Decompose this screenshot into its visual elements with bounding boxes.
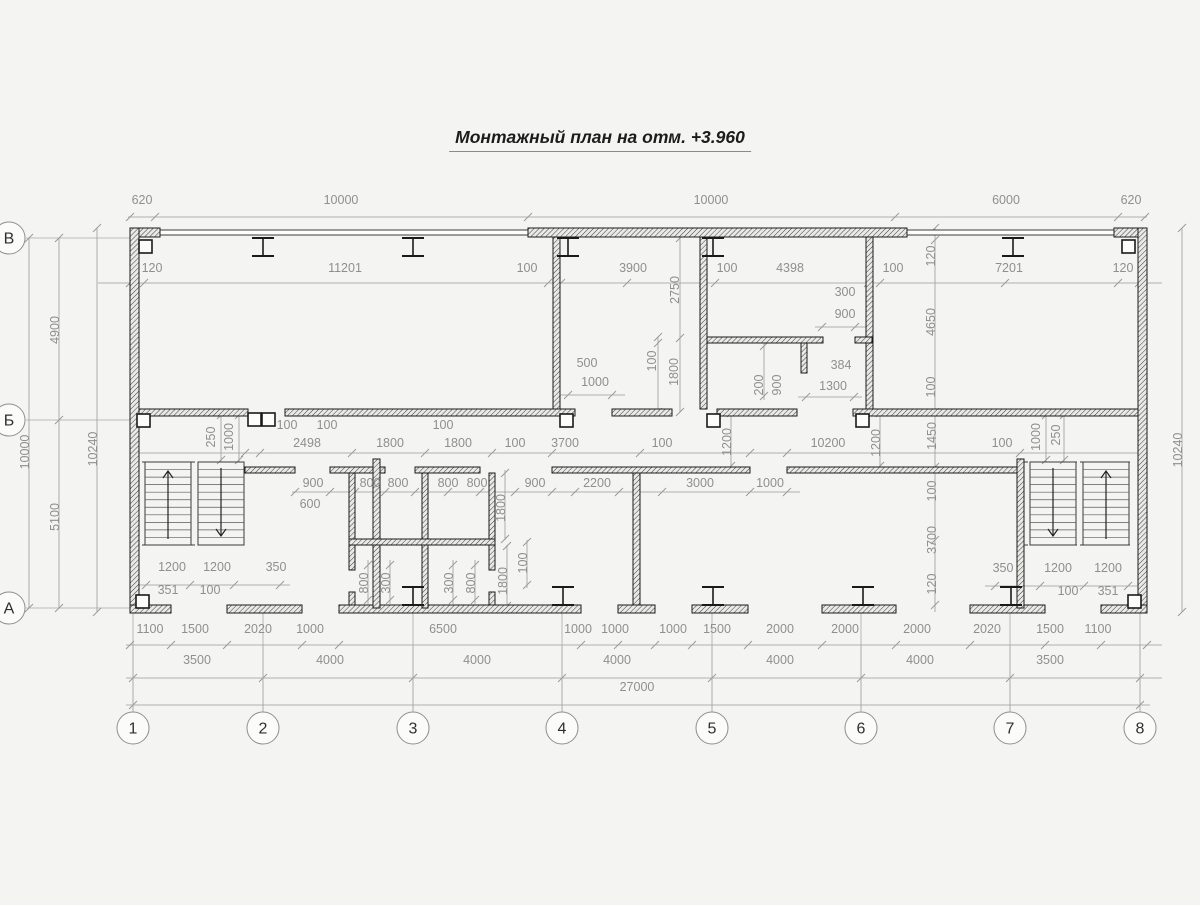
dim-label: 900 xyxy=(303,476,324,490)
dim-label: 100 xyxy=(924,377,938,398)
dim-label: 3900 xyxy=(619,261,647,275)
dim-label: 350 xyxy=(993,561,1014,575)
dim-label: 250 xyxy=(1049,425,1063,446)
dim-label: 800 xyxy=(438,476,459,490)
column-mark xyxy=(248,413,261,426)
dim-label: 100 xyxy=(883,261,904,275)
axis-bubble-label: 5 xyxy=(708,721,717,738)
dim-label: 3000 xyxy=(686,476,714,490)
axis-bubble-label: В xyxy=(4,231,15,248)
dim-label: 100 xyxy=(1058,584,1079,598)
dim-label: 2000 xyxy=(903,622,931,636)
wall xyxy=(1138,228,1147,612)
wall xyxy=(489,592,495,605)
wall xyxy=(717,409,797,416)
dim-label: 10000 xyxy=(694,193,729,207)
dim-label: 100 xyxy=(645,351,659,372)
dim-label: 1500 xyxy=(1036,622,1064,636)
drawing-title: Монтажный план на отм. +3.960 xyxy=(449,127,751,152)
dim-label: 100 xyxy=(277,418,298,432)
dim-label: 10000 xyxy=(324,193,359,207)
dim-label: 2000 xyxy=(766,622,794,636)
column-mark xyxy=(1122,240,1135,253)
wall xyxy=(528,228,907,237)
dim-label: 1800 xyxy=(494,494,508,522)
dim-label: 4398 xyxy=(776,261,804,275)
wall xyxy=(553,237,560,409)
wall xyxy=(855,337,872,343)
dim-label: 100 xyxy=(925,481,939,502)
dim-label: 120 xyxy=(1113,261,1134,275)
dim-label: 300 xyxy=(379,573,393,594)
axis-bubbles-layer: 12345678ВБА xyxy=(0,222,1156,744)
axis-bubble-label: 1 xyxy=(129,721,138,738)
dim-label: 620 xyxy=(1121,193,1142,207)
wall xyxy=(787,467,1020,473)
wall xyxy=(552,467,750,473)
dim-label: 100 xyxy=(317,418,338,432)
dim-label: 500 xyxy=(577,356,598,370)
wall xyxy=(618,605,655,613)
dim-label: 600 xyxy=(300,497,321,511)
dim-label: 6500 xyxy=(429,622,457,636)
dim-label: 1000 xyxy=(601,622,629,636)
dim-label: 4000 xyxy=(316,653,344,667)
dim-label: 4000 xyxy=(906,653,934,667)
dim-label: 11201 xyxy=(328,261,362,275)
dim-label: 900 xyxy=(770,375,784,396)
dim-label: 900 xyxy=(835,307,856,321)
axis-bubble-label: 2 xyxy=(259,721,268,738)
wall xyxy=(245,467,295,473)
dim-label: 200 xyxy=(752,375,766,396)
wall xyxy=(349,473,355,570)
dim-label: 1000 xyxy=(296,622,324,636)
dim-label: 4000 xyxy=(603,653,631,667)
dim-label: 100 xyxy=(992,436,1013,450)
axis-bubble-label: 4 xyxy=(558,721,567,738)
dim-label: 3500 xyxy=(183,653,211,667)
wall xyxy=(866,237,873,409)
dim-label: 2020 xyxy=(244,622,272,636)
column-mark xyxy=(139,240,152,253)
dim-label: 5100 xyxy=(48,503,62,531)
dim-label: 800 xyxy=(464,573,478,594)
dim-label: 1100 xyxy=(1085,622,1112,636)
dim-label: 1100 xyxy=(137,622,164,636)
dim-label: 1800 xyxy=(444,436,472,450)
dim-label: 120 xyxy=(924,246,938,267)
dim-label: 6000 xyxy=(992,193,1020,207)
dim-label: 3500 xyxy=(1036,653,1064,667)
dim-label: 1800 xyxy=(376,436,404,450)
axis-bubble-label: 7 xyxy=(1006,721,1015,738)
dim-label: 1200 xyxy=(1094,561,1122,575)
wall xyxy=(415,467,480,473)
dim-label: 7201 xyxy=(995,261,1023,275)
dim-label: 100 xyxy=(200,583,221,597)
wall xyxy=(139,409,248,416)
dim-label: 350 xyxy=(266,560,287,574)
drawing-sheet: Монтажный план на отм. +3.960 6201000010… xyxy=(0,0,1200,900)
dim-label: 1500 xyxy=(181,622,209,636)
axis-grid-layer xyxy=(26,238,1140,711)
wall xyxy=(612,409,672,416)
dim-label: 4900 xyxy=(48,316,62,344)
dim-label: 351 xyxy=(158,583,179,597)
dim-label: 100 xyxy=(516,553,530,574)
wall xyxy=(801,343,807,373)
column-mark xyxy=(856,414,869,427)
axis-bubble-label: Б xyxy=(4,413,15,430)
dim-label: 1000 xyxy=(222,423,236,451)
dim-label: 300 xyxy=(442,573,456,594)
dim-label: 384 xyxy=(831,358,852,372)
wall xyxy=(285,409,575,416)
dim-label: 1800 xyxy=(667,358,681,386)
wall xyxy=(227,605,302,613)
dim-label: 1200 xyxy=(203,560,231,574)
dim-label: 4000 xyxy=(463,653,491,667)
thin-wall xyxy=(158,230,530,235)
dim-label: 1300 xyxy=(819,379,847,393)
dim-label: 3700 xyxy=(551,436,579,450)
wall xyxy=(1017,459,1024,608)
dim-label: 4650 xyxy=(924,308,938,336)
wall xyxy=(853,409,1138,416)
dim-label: 900 xyxy=(525,476,546,490)
wall xyxy=(970,605,1045,613)
dim-label: 1200 xyxy=(158,560,186,574)
dim-label: 1450 xyxy=(925,422,939,450)
dim-label: 800 xyxy=(467,476,488,490)
wall xyxy=(700,237,707,409)
dim-label: 2750 xyxy=(668,276,682,304)
axis-bubble-label: 8 xyxy=(1136,721,1145,738)
dim-label: 250 xyxy=(204,427,218,448)
dim-label: 300 xyxy=(835,285,856,299)
dim-label: 1000 xyxy=(581,375,609,389)
dim-label: 2200 xyxy=(583,476,611,490)
dim-label: 2020 xyxy=(973,622,1001,636)
axis-bubble-label: 3 xyxy=(409,721,418,738)
dim-label: 10240 xyxy=(1171,433,1185,468)
wall xyxy=(349,592,355,605)
thin-wall xyxy=(905,230,1116,235)
dim-label: 2498 xyxy=(293,436,321,450)
dim-label: 1000 xyxy=(1029,423,1043,451)
wall xyxy=(822,605,896,613)
column-mark xyxy=(136,595,149,608)
dim-label: 800 xyxy=(357,573,371,594)
wall xyxy=(692,605,748,613)
dim-label: 3700 xyxy=(925,526,939,554)
dim-label: 4000 xyxy=(766,653,794,667)
column-mark xyxy=(262,413,275,426)
column-mark xyxy=(137,414,150,427)
column-mark xyxy=(707,414,720,427)
dim-label: 800 xyxy=(360,476,381,490)
dim-label: 351 xyxy=(1098,584,1119,598)
wall xyxy=(349,539,495,545)
dim-label: 100 xyxy=(433,418,454,432)
dim-label: 120 xyxy=(925,574,939,595)
dim-label: 100 xyxy=(717,261,738,275)
dim-label: 10000 xyxy=(18,435,32,470)
dim-label: 27000 xyxy=(620,680,655,694)
dim-label: 100 xyxy=(652,436,673,450)
dim-label: 1200 xyxy=(1044,561,1072,575)
dim-label: 100 xyxy=(505,436,526,450)
axis-bubble-label: 6 xyxy=(857,721,866,738)
dim-label: 100 xyxy=(517,261,538,275)
dim-label: 10240 xyxy=(86,432,100,467)
column-mark xyxy=(560,414,573,427)
dim-label: 1200 xyxy=(720,428,734,456)
dim-label: 2000 xyxy=(831,622,859,636)
axis-bubble-label: А xyxy=(4,601,15,618)
wall xyxy=(707,337,823,343)
dim-label: 10200 xyxy=(811,436,846,450)
dim-label: 1000 xyxy=(756,476,784,490)
dim-label: 1500 xyxy=(703,622,731,636)
wall xyxy=(633,473,640,605)
dim-label: 1000 xyxy=(564,622,592,636)
dim-label: 620 xyxy=(132,193,153,207)
dim-label: 120 xyxy=(142,261,163,275)
dim-label: 800 xyxy=(388,476,409,490)
dim-label: 1800 xyxy=(496,567,510,595)
column-mark xyxy=(1128,595,1141,608)
dim-label: 1200 xyxy=(869,429,883,457)
dim-label: 1000 xyxy=(659,622,687,636)
